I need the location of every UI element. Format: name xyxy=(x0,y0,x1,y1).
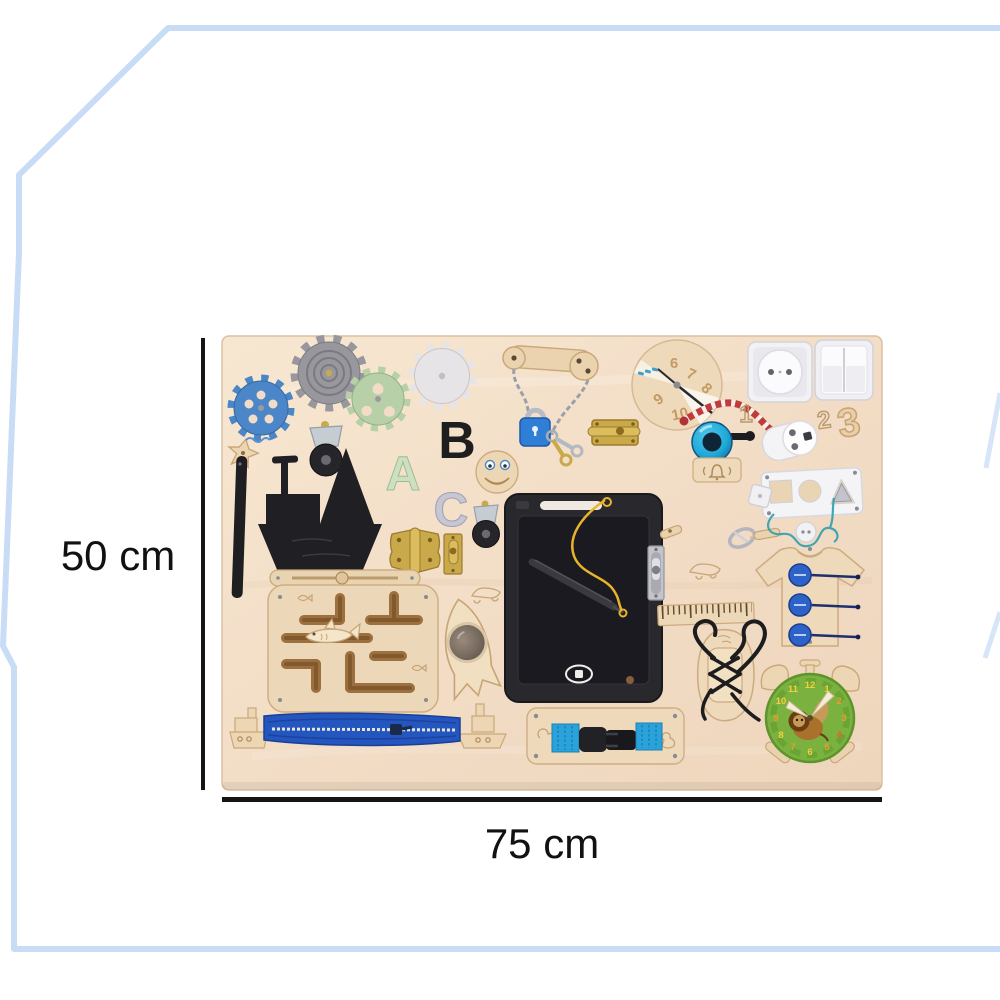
wooden-slide-latch xyxy=(270,570,420,586)
clock-number-12: 12 xyxy=(805,680,816,691)
busy-board: 6 7 8 9 10 1 2 3 xyxy=(222,336,882,790)
shark-maze xyxy=(268,585,438,712)
clock-number-1: 1 xyxy=(824,684,830,695)
brass-slide-bolt xyxy=(588,420,640,445)
letter-B: B xyxy=(438,412,476,470)
clock-number-7: 7 xyxy=(790,742,795,753)
shape-sorter-panel xyxy=(761,467,863,518)
small-brass-bolt xyxy=(444,534,462,574)
clock-number-11: 11 xyxy=(788,684,799,695)
clock-number-9: 9 xyxy=(773,713,778,724)
silver-door-bolt xyxy=(648,546,664,600)
engraved-number-1: 1 xyxy=(739,401,752,428)
letter-A: A xyxy=(386,448,421,501)
lcd-writing-tablet xyxy=(505,494,662,702)
clock-number-5: 5 xyxy=(824,742,830,753)
clock-number-6: 6 xyxy=(807,747,812,758)
alarm-clock-puzzle: 12 1 2 3 4 5 6 7 8 9 10 11 xyxy=(761,660,859,765)
white-button xyxy=(796,522,816,542)
light-switch xyxy=(815,340,873,400)
bell-engraving-plate xyxy=(693,458,741,482)
clock-number-4: 4 xyxy=(836,730,842,741)
caster-wheel-1 xyxy=(310,421,342,476)
height-label: 50 cm xyxy=(61,532,175,579)
width-dimension-line xyxy=(222,797,882,802)
clock-number-3: 3 xyxy=(841,713,846,724)
clock-number-10: 10 xyxy=(776,696,787,707)
width-label: 75 cm xyxy=(485,820,599,867)
blue-buttons xyxy=(789,564,811,646)
product-dimension-image: 50 cm 75 cm xyxy=(0,0,1000,1000)
power-socket xyxy=(748,342,812,402)
spinner-number-6: 6 xyxy=(670,355,678,372)
buckle-board xyxy=(527,708,684,764)
brass-hinge xyxy=(390,528,440,574)
height-dimension-line xyxy=(201,338,205,790)
zipper-teeth xyxy=(272,729,456,730)
number-spinner-wheel: 6 7 8 9 10 xyxy=(632,340,722,430)
white-square-piece xyxy=(748,484,772,508)
smiley-face xyxy=(476,451,518,493)
caster-wheel-2 xyxy=(473,501,500,548)
letter-C: C xyxy=(434,484,469,537)
clock-number-8: 8 xyxy=(778,730,783,741)
clock-number-2: 2 xyxy=(836,696,841,707)
